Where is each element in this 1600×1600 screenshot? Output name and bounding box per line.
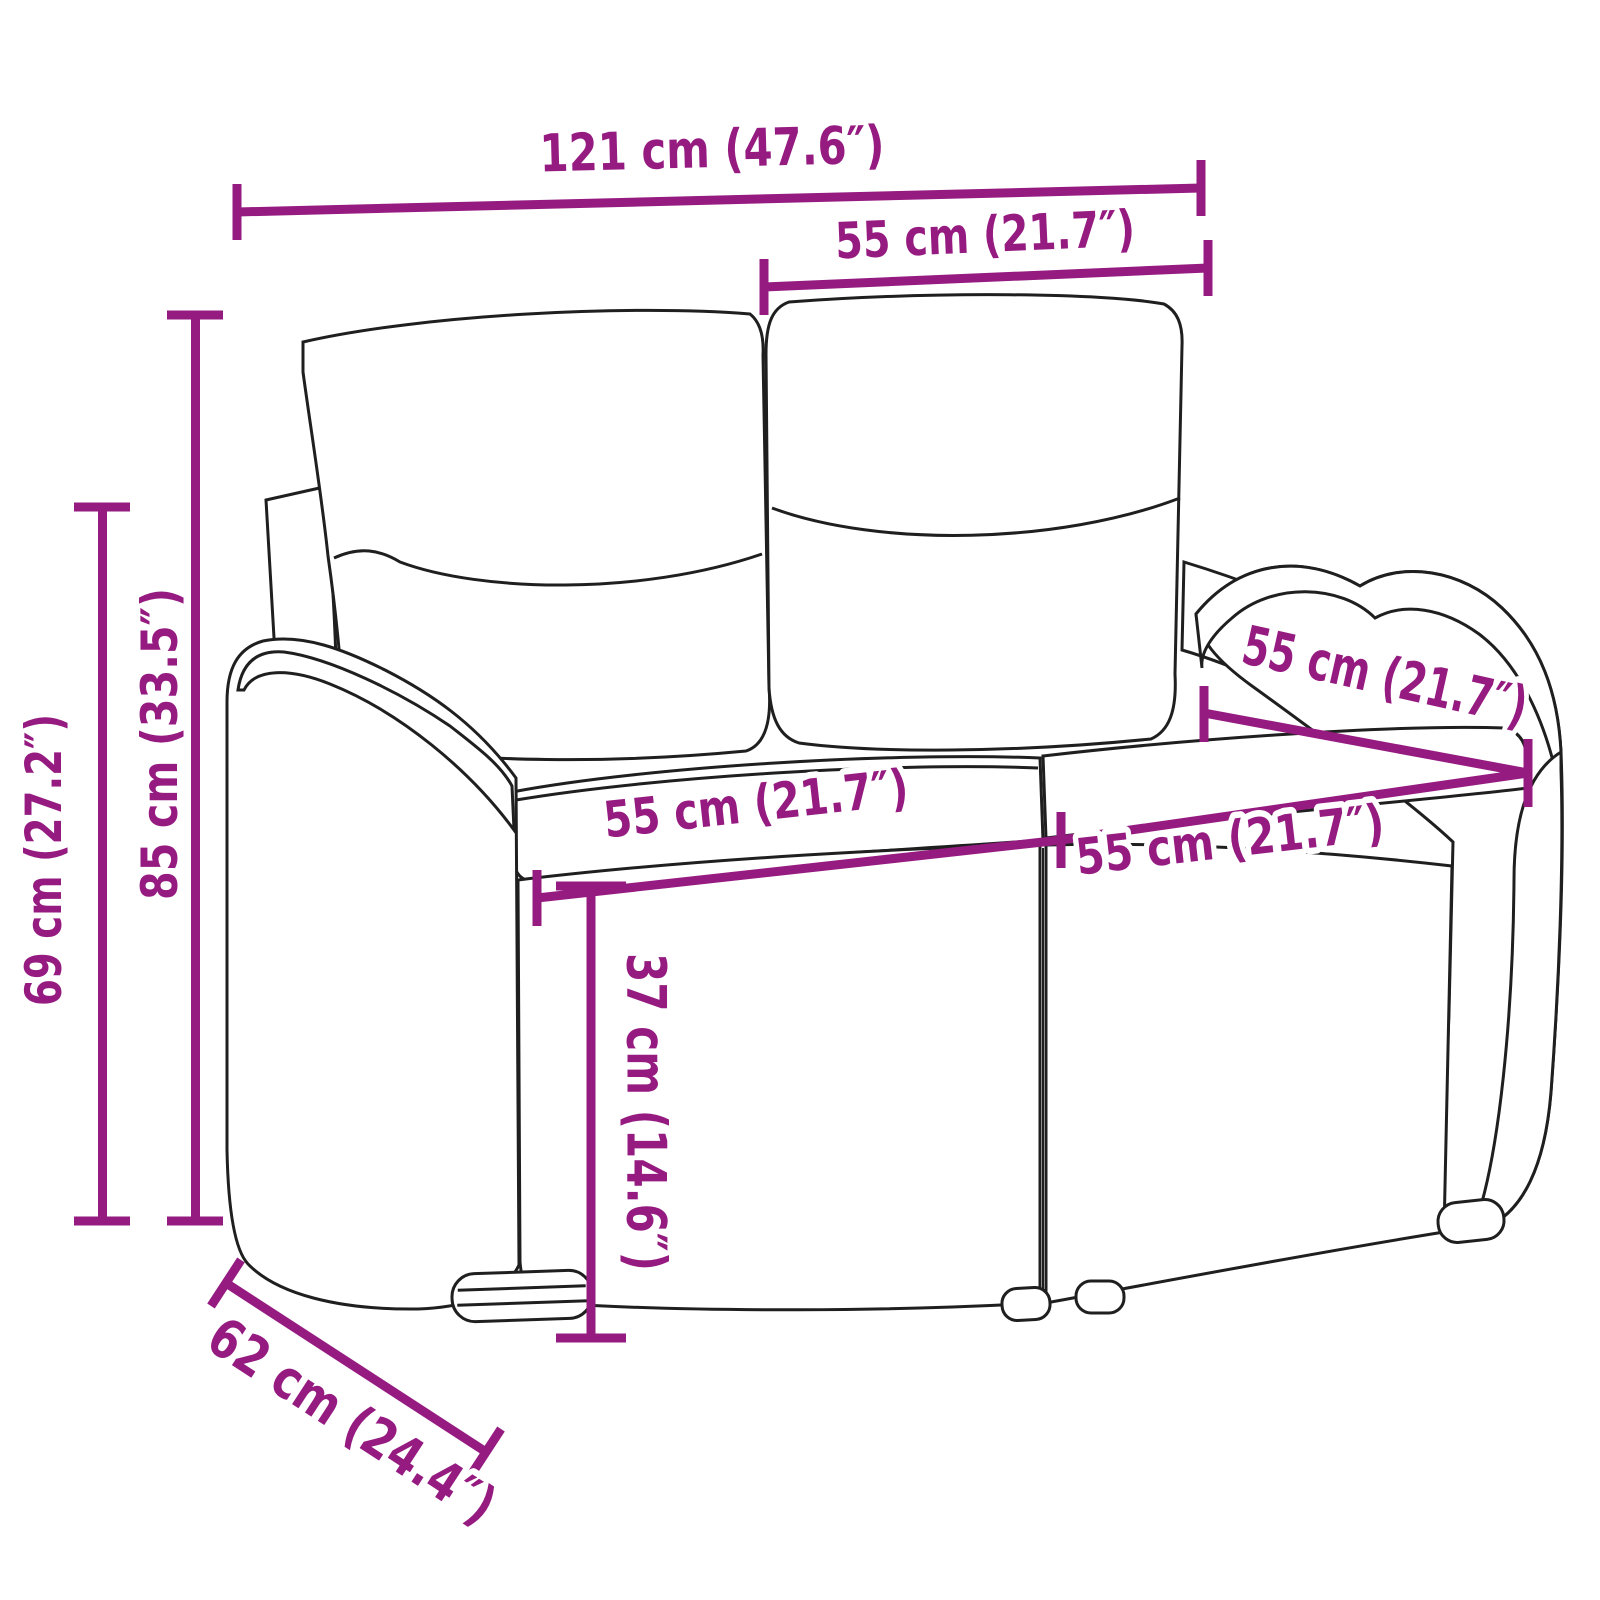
armrest-left bbox=[227, 639, 519, 1309]
dim-overall-width-label: 121 cm (47.6″) bbox=[539, 115, 885, 184]
dim-frame-height-label: 69 cm (27.2″) bbox=[15, 714, 73, 1006]
front-panel-left bbox=[518, 845, 1040, 1310]
front-panel-right bbox=[1046, 844, 1452, 1303]
foot-front-mid-left bbox=[1001, 1287, 1051, 1321]
dim-seat-height-label: 37 cm (14.6″) bbox=[615, 953, 678, 1271]
diagram-canvas: 121 cm (47.6″) 55 cm (21.7″) 85 cm (33.5… bbox=[0, 0, 1600, 1600]
dim-overall-depth-label: 62 cm (24.4″) bbox=[196, 1305, 507, 1538]
foot-front-right bbox=[1436, 1198, 1506, 1245]
dim-backrest-cushion-width-line bbox=[764, 268, 1208, 287]
dimension-diagram: 121 cm (47.6″) 55 cm (21.7″) 85 cm (33.5… bbox=[0, 0, 1600, 1600]
dim-total-height: 85 cm (33.5″) bbox=[131, 315, 223, 1221]
dim-total-height-label: 85 cm (33.5″) bbox=[131, 588, 189, 900]
foot-front-mid-right bbox=[1076, 1281, 1124, 1313]
dim-frame-height: 69 cm (27.2″) bbox=[15, 507, 130, 1221]
back-cushion-right bbox=[766, 295, 1182, 750]
foot-front-left bbox=[451, 1270, 593, 1323]
dim-backrest-cushion-width-label: 55 cm (21.7″) bbox=[834, 199, 1136, 270]
